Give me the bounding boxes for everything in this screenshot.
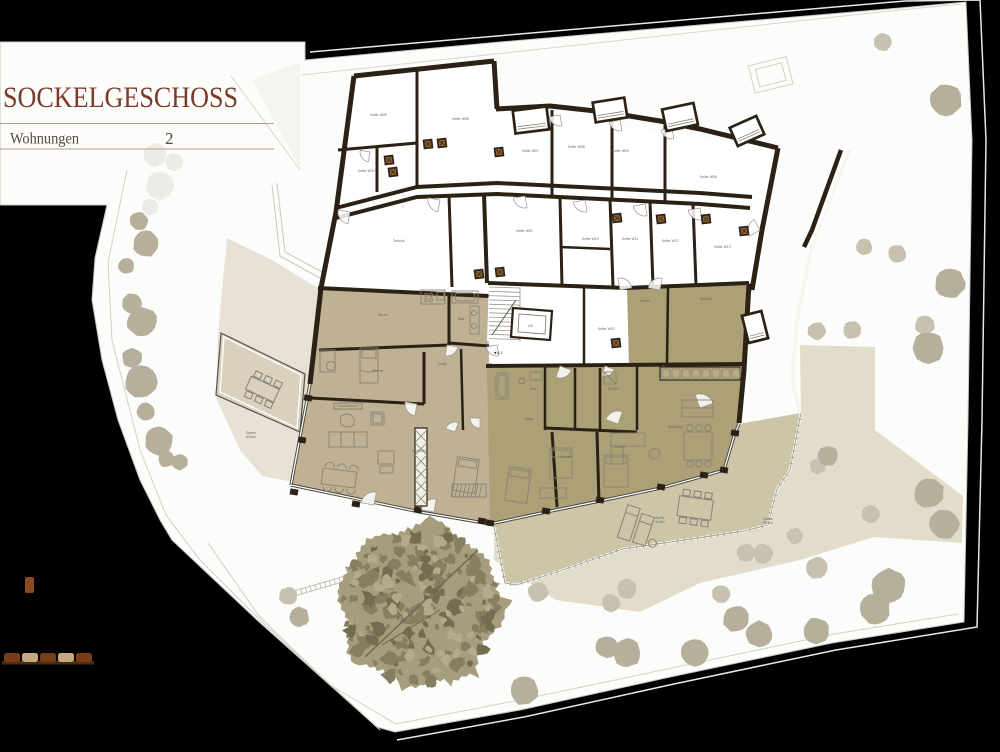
svg-text:2: 2 — [165, 129, 174, 148]
svg-text:Keller W08: Keller W08 — [568, 145, 585, 149]
svg-text:◄4.1: ◄4.1 — [493, 350, 503, 355]
svg-text:41.6m²: 41.6m² — [655, 520, 665, 524]
svg-text:?: ? — [402, 205, 404, 209]
svg-text:Keller W08: Keller W08 — [700, 175, 717, 179]
svg-text:Bad: Bad — [458, 317, 464, 321]
svg-text:Keller W02: Keller W02 — [598, 327, 615, 331]
svg-text:Keller W10: Keller W10 — [582, 237, 599, 241]
svg-text:Technik: Technik — [393, 239, 405, 243]
svg-text:Keller W07: Keller W07 — [522, 149, 539, 153]
svg-text:Keller W03: Keller W03 — [358, 169, 375, 173]
svg-text:Keller W12: Keller W12 — [662, 239, 679, 243]
svg-text:Keller W06: Keller W06 — [452, 117, 469, 121]
svg-text:Küche: Küche — [378, 313, 388, 317]
svg-text:Keller W11: Keller W11 — [622, 237, 638, 241]
svg-text:Wohnen: Wohnen — [700, 297, 713, 301]
svg-text:Küche: Küche — [640, 299, 650, 303]
svg-text:Lift: Lift — [528, 324, 533, 328]
svg-text:Du/WC: Du/WC — [608, 387, 619, 391]
svg-text:Zimmer: Zimmer — [614, 445, 626, 449]
svg-text:SOCKELGESCHOSS: SOCKELGESCHOSS — [3, 81, 238, 114]
svg-text:Bad: Bad — [530, 387, 536, 391]
svg-text:99.5m²: 99.5m² — [763, 521, 773, 525]
svg-text:Keller W05: Keller W05 — [370, 113, 387, 117]
svg-text:Zimmer: Zimmer — [372, 369, 384, 373]
svg-text:Wohnungen: Wohnungen — [10, 131, 79, 148]
svg-text:Zimmer: Zimmer — [560, 455, 572, 459]
svg-text:40.5m²: 40.5m² — [246, 435, 256, 439]
svg-text:Wo/Es/Kü: Wo/Es/Kü — [668, 425, 683, 429]
svg-text:Keller W09: Keller W09 — [612, 149, 629, 153]
svg-text:Wo/Es/Kü: Wo/Es/Kü — [412, 449, 427, 453]
svg-text:Gang: Gang — [438, 362, 446, 366]
svg-text:Gang: Gang — [525, 417, 533, 421]
svg-text:Keller W01: Keller W01 — [516, 229, 533, 233]
svg-text:Keller W13: Keller W13 — [714, 245, 731, 249]
